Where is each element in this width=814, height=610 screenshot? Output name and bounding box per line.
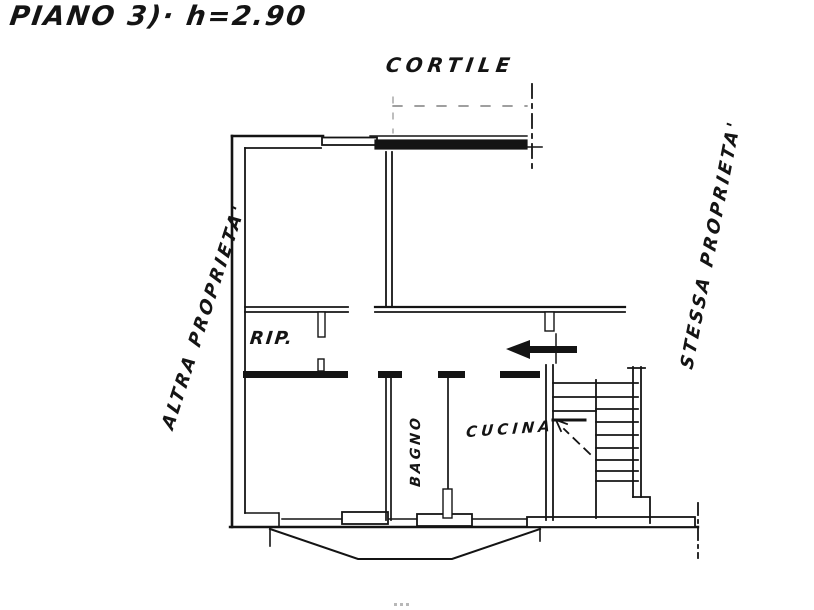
storage-door-jamb-2 <box>318 359 324 371</box>
floor-plan-page: PIANO 3)· h=2.90 CORTILE ALTRA PROPRIETA… <box>0 0 814 610</box>
stairwell <box>546 365 650 523</box>
top-window <box>322 138 377 146</box>
balcony-outline <box>270 527 540 559</box>
partition-thick-wall <box>243 371 540 378</box>
interior-walls <box>243 152 625 520</box>
entrance-door-jamb <box>545 312 554 331</box>
page-title: PIANO 3)· h=2.90 <box>8 1 309 32</box>
bathroom-label: BAGNO <box>408 400 424 502</box>
scan-noise-mark <box>394 603 412 606</box>
storage-door-jamb <box>318 312 325 337</box>
storage-room-label: RIP. <box>249 328 295 349</box>
outer-walls <box>230 136 698 527</box>
entrance-arrow <box>506 334 577 363</box>
stair-direction-arrow <box>556 420 590 454</box>
courtyard-label: CORTILE <box>384 53 516 77</box>
